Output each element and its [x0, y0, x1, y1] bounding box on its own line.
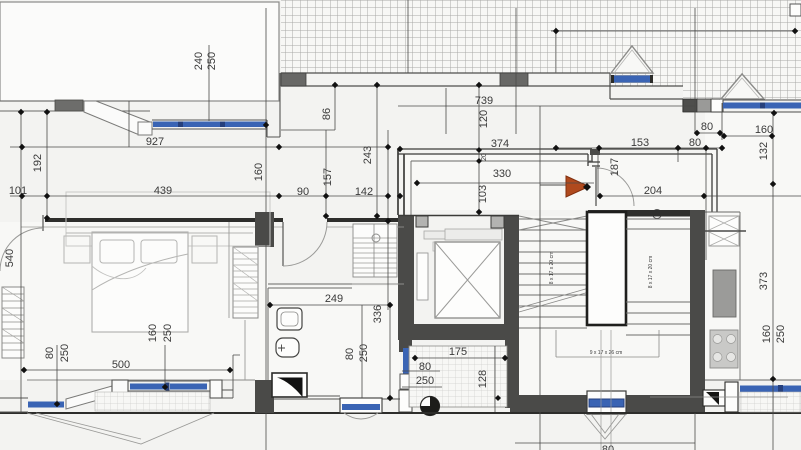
svg-text:80: 80 — [344, 348, 356, 360]
svg-text:157: 157 — [322, 168, 334, 186]
svg-text:120: 120 — [478, 110, 490, 128]
svg-text:249: 249 — [325, 293, 343, 305]
svg-text:142: 142 — [355, 186, 373, 198]
svg-text:101: 101 — [9, 185, 27, 197]
svg-text:80: 80 — [602, 444, 614, 450]
svg-text:250: 250 — [775, 325, 787, 343]
svg-text:80: 80 — [701, 121, 713, 133]
svg-text:8 x 17 x 20 cm: 8 x 17 x 20 cm — [549, 252, 555, 285]
svg-text:187: 187 — [609, 158, 621, 176]
svg-text:132: 132 — [758, 142, 770, 160]
svg-text:192: 192 — [32, 154, 44, 172]
svg-text:240: 240 — [193, 52, 205, 70]
svg-text:20: 20 — [481, 153, 488, 161]
svg-text:927: 927 — [146, 136, 164, 148]
svg-text:160: 160 — [147, 324, 159, 342]
svg-text:250: 250 — [206, 52, 218, 70]
svg-text:160: 160 — [253, 163, 265, 181]
svg-text:175: 175 — [449, 346, 467, 358]
svg-text:128: 128 — [477, 370, 489, 388]
svg-text:739: 739 — [475, 95, 493, 107]
svg-text:9 x 17 x 26 cm: 9 x 17 x 26 cm — [590, 350, 623, 356]
svg-text:80: 80 — [44, 347, 56, 359]
svg-text:336: 336 — [372, 305, 384, 323]
svg-text:80: 80 — [689, 137, 701, 149]
svg-text:373: 373 — [758, 272, 770, 290]
svg-text:250: 250 — [162, 324, 174, 342]
svg-text:160: 160 — [755, 124, 773, 136]
svg-text:8 x 17 x 20 cm: 8 x 17 x 20 cm — [648, 256, 654, 289]
svg-text:103: 103 — [477, 185, 489, 203]
svg-text:80: 80 — [419, 361, 431, 373]
svg-text:243: 243 — [362, 146, 374, 164]
svg-text:500: 500 — [112, 359, 130, 371]
svg-text:439: 439 — [154, 185, 172, 197]
svg-text:330: 330 — [493, 168, 511, 180]
svg-text:250: 250 — [59, 344, 71, 362]
svg-text:540: 540 — [4, 249, 16, 267]
svg-text:160: 160 — [761, 325, 773, 343]
svg-text:374: 374 — [491, 138, 509, 150]
svg-text:90: 90 — [297, 186, 309, 198]
svg-text:250: 250 — [358, 344, 370, 362]
svg-text:86: 86 — [321, 108, 333, 120]
svg-text:204: 204 — [644, 185, 662, 197]
svg-text:153: 153 — [631, 137, 649, 149]
svg-text:250: 250 — [416, 375, 434, 387]
